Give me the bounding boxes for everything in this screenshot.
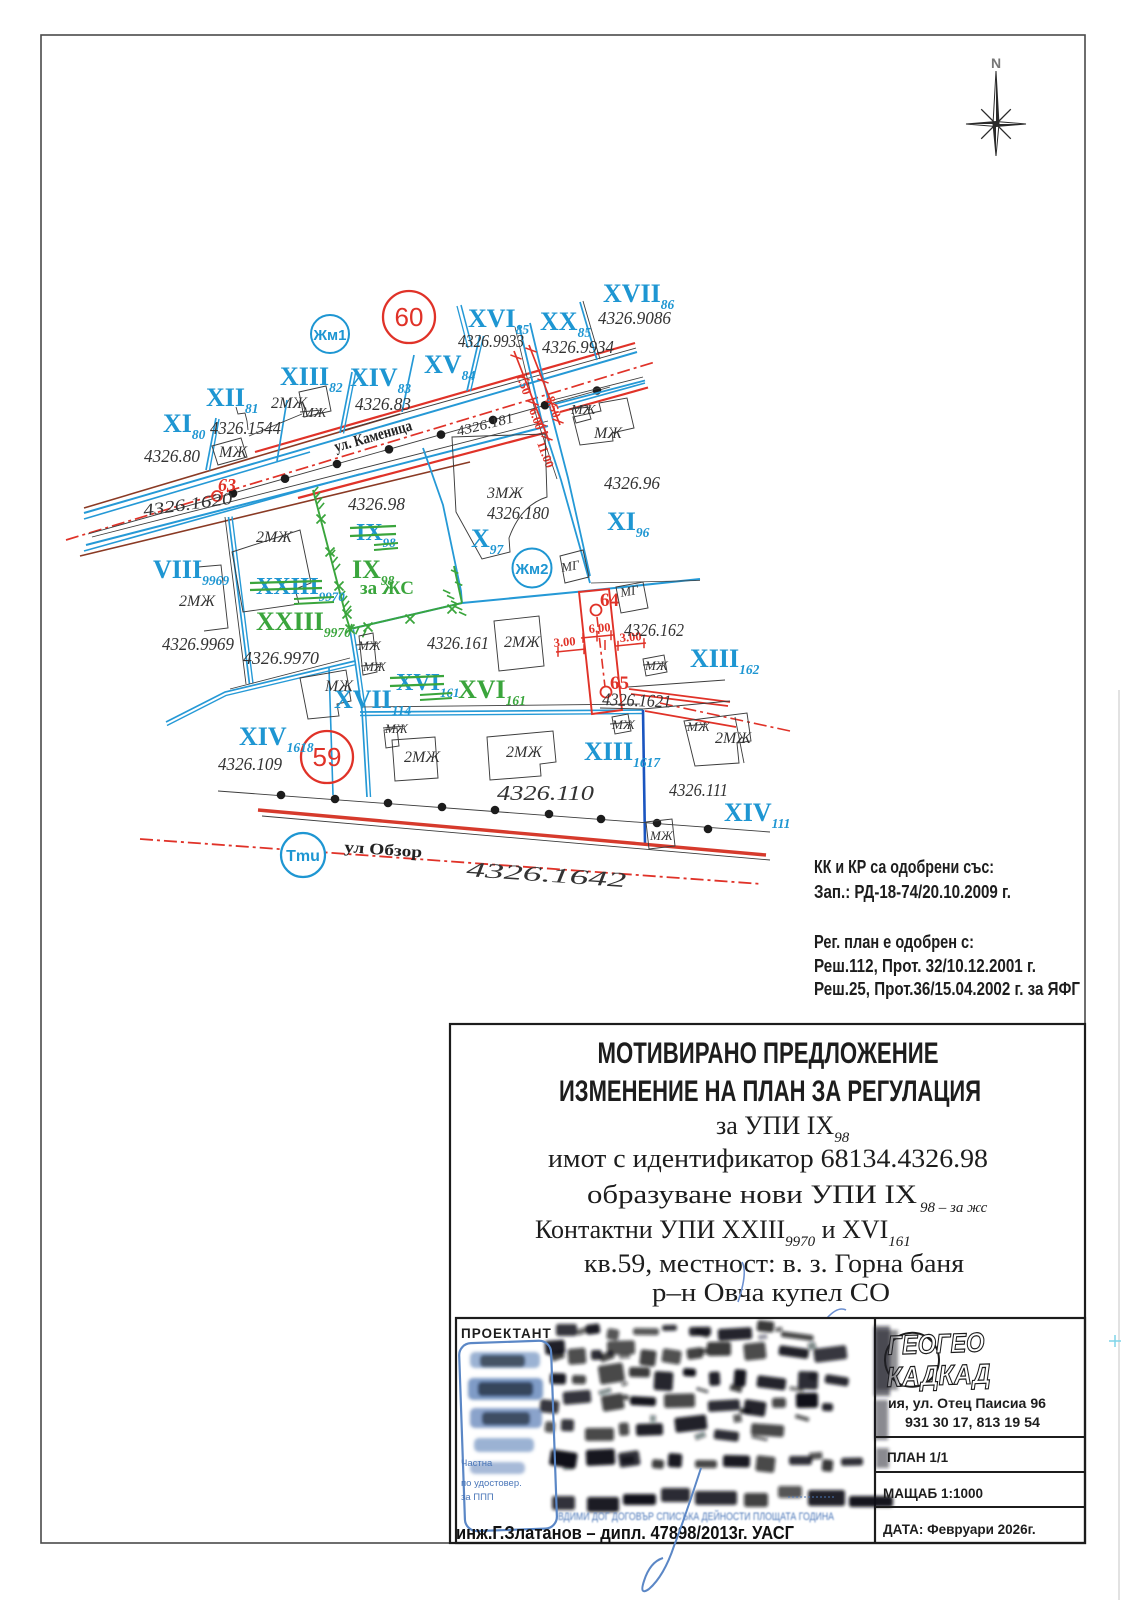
svg-text:59: 59 [313, 742, 342, 772]
svg-text:2МЖ: 2МЖ [179, 593, 216, 610]
svg-text:3.00: 3.00 [553, 634, 576, 650]
svg-text:4326.9933: 4326.9933 [458, 331, 524, 351]
svg-text:ИЗМЕНЕНИЕ НА ПЛАН ЗА РЕГУЛАЦИЯ: ИЗМЕНЕНИЕ НА ПЛАН ЗА РЕГУЛАЦИЯ [559, 1075, 981, 1108]
svg-text:МЖ: МЖ [593, 425, 623, 442]
svg-text:МЖ: МЖ [218, 444, 248, 461]
svg-text:98 – за жс: 98 – за жс [920, 1200, 988, 1216]
svg-text:за ЖС: за ЖС [360, 578, 414, 599]
svg-text:4326.96: 4326.96 [604, 473, 660, 493]
svg-text:за ППП: за ППП [461, 1492, 494, 1503]
svg-text:4326.180: 4326.180 [487, 503, 549, 523]
svg-text:МЖ: МЖ [686, 719, 711, 734]
svg-text:МЖ: МЖ [570, 403, 597, 418]
svg-text:60: 60 [395, 302, 424, 332]
svg-text:МЖ: МЖ [644, 658, 669, 673]
svg-text:N: N [991, 55, 1001, 71]
svg-text:МАЩАБ 1:1000: МАЩАБ 1:1000 [883, 1486, 983, 1501]
svg-text:4326.111: 4326.111 [669, 780, 728, 800]
svg-text:4326.110: 4326.110 [497, 781, 595, 805]
svg-text:64: 64 [600, 590, 620, 611]
svg-text:Частна: Частна [461, 1458, 493, 1469]
svg-text:4326.1544: 4326.1544 [210, 418, 281, 438]
svg-text:2МЖ: 2МЖ [504, 634, 541, 651]
svg-text:Рег. план е одобрен с:: Рег. план е одобрен с: [814, 931, 974, 952]
svg-text:4326.109: 4326.109 [218, 754, 282, 774]
svg-text:имот с идентификатор 68134.432: имот с идентификатор 68134.4326.98 [548, 1144, 988, 1173]
svg-text:по удостовер.: по удостовер. [461, 1478, 522, 1489]
svg-text:2МЖ: 2МЖ [506, 744, 543, 761]
svg-text:6.00: 6.00 [588, 620, 611, 636]
svg-text:МЖ: МЖ [324, 678, 354, 695]
svg-text:Реш.25, Прот.36/15.04.2002 г.: Реш.25, Прот.36/15.04.2002 г. за ЯФГ [814, 978, 1080, 999]
svg-text:р–н Овча купел СО: р–н Овча купел СО [652, 1278, 890, 1307]
svg-text:КАДКАД: КАДКАД [886, 1358, 991, 1393]
svg-text:МОТИВИРАНО ПРЕДЛОЖЕНИЕ: МОТИВИРАНО ПРЕДЛОЖЕНИЕ [598, 1037, 939, 1070]
svg-text:2МЖ: 2МЖ [404, 749, 441, 766]
svg-text:Реш.112, Прот. 32/10.12.2001 г: Реш.112, Прот. 32/10.12.2001 г. [814, 955, 1036, 976]
svg-text:Жм1: Жм1 [313, 327, 347, 344]
svg-text:4326.9970: 4326.9970 [243, 648, 319, 668]
svg-text:МЖ: МЖ [301, 406, 328, 421]
svg-text:4326.161: 4326.161 [427, 633, 489, 653]
svg-text:4326.98: 4326.98 [348, 494, 405, 514]
svg-text:2МЖ: 2МЖ [256, 529, 293, 546]
svg-text:кв.59, местност: в. з. Горна: кв.59, местност: в. з. Горна баня [584, 1249, 964, 1278]
svg-text:4326.9086: 4326.9086 [598, 308, 671, 328]
svg-text:ия, ул. Отец Паисиа 96: ия, ул. Отец Паисиа 96 [888, 1396, 1047, 1411]
svg-text:МЖ: МЖ [649, 828, 674, 843]
svg-text:4326.9934: 4326.9934 [542, 337, 614, 357]
svg-text:4326.80: 4326.80 [144, 446, 200, 466]
svg-text:ВДИМИ ДОГ ДОГОВЪР СПИСЪКА ДЕЙН: ВДИМИ ДОГ ДОГОВЪР СПИСЪКА ДЕЙНОСТИ ПЛОЩА… [558, 1510, 835, 1523]
svg-text:Tmu: Tmu [286, 848, 320, 865]
svg-text:ПРОЕКТАНТ: ПРОЕКТАНТ [461, 1326, 552, 1341]
svg-text:Жм2: Жм2 [515, 561, 549, 578]
svg-text:ГЕОГЕО: ГЕОГЕО [887, 1327, 985, 1360]
svg-text:4326.1621: 4326.1621 [602, 689, 672, 711]
svg-text:образуване нови УПИ IX: образуване нови УПИ IX [587, 1180, 917, 1209]
svg-text:ПЛАН 1/1: ПЛАН 1/1 [887, 1450, 949, 1465]
svg-text:931 30 17, 813 19 54: 931 30 17, 813 19 54 [905, 1415, 1041, 1430]
svg-text:МЖ: МЖ [611, 717, 636, 732]
svg-text:МЖ: МЖ [357, 638, 382, 653]
svg-text:МЖ: МЖ [384, 721, 409, 736]
svg-text:КК и КР са одобрени със:: КК и КР са одобрени със: [814, 856, 994, 877]
svg-text:4326.9969: 4326.9969 [162, 634, 234, 654]
svg-text:4326.83: 4326.83 [355, 394, 411, 414]
svg-text:ДАТА: Февруари 2026г.: ДАТА: Февруари 2026г. [883, 1522, 1036, 1537]
svg-text:Зап.: РД-18-74/20.10.2009 г.: Зап.: РД-18-74/20.10.2009 г. [814, 881, 1011, 902]
svg-text:МЖ: МЖ [362, 659, 387, 674]
svg-text:2МЖ: 2МЖ [715, 730, 752, 747]
svg-text:3МЖ: 3МЖ [486, 485, 524, 502]
svg-text:инж.Г.Златанов – дипл. 4789: инж.Г.Златанов – дипл. 47898/2013г. УАСГ [456, 1523, 794, 1543]
svg-text:4326.162: 4326.162 [624, 620, 684, 640]
